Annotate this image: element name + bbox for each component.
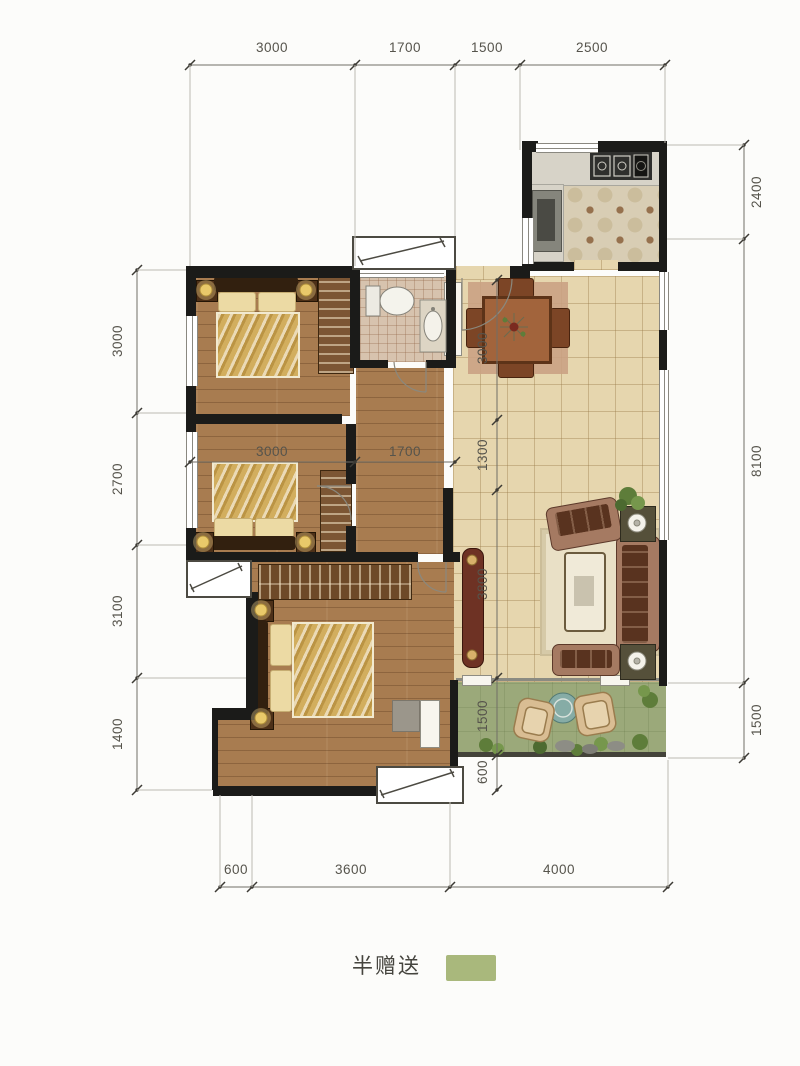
dim-label: 1400 xyxy=(110,704,126,764)
wall-segment xyxy=(659,540,667,686)
bed3-blanket xyxy=(292,622,374,718)
bathroom-floor xyxy=(360,276,446,362)
coffee-table-tray xyxy=(574,576,594,606)
wall-segment xyxy=(598,141,667,152)
bay-window-marker-top xyxy=(352,236,456,270)
bedroom1-wardrobe xyxy=(318,274,354,374)
wall-segment xyxy=(659,330,667,372)
coffee-table xyxy=(564,552,606,632)
dim-label: 1500 xyxy=(749,690,765,750)
wall-segment xyxy=(450,680,458,766)
bed2-headboard xyxy=(210,536,296,550)
bay-window-marker-left xyxy=(186,560,252,598)
dim-label: 2400 xyxy=(749,162,765,222)
sofa-bench xyxy=(552,644,620,676)
bed1-headboard xyxy=(214,276,298,292)
bedroom3-dresser xyxy=(420,700,440,748)
dim-label: 4000 xyxy=(529,862,589,878)
dim-label: 1700 xyxy=(375,40,435,56)
wall-segment xyxy=(446,266,456,368)
bed3-pillow xyxy=(270,670,292,712)
bedroom3-mat xyxy=(392,700,420,732)
dim-label: 8100 xyxy=(749,431,765,491)
sofa-long-cushions xyxy=(622,545,648,643)
dining-table xyxy=(482,296,552,364)
dim-label: 2500 xyxy=(562,40,622,56)
living-window xyxy=(659,370,669,540)
bedroom3-floor-ext xyxy=(213,716,253,790)
bed2-pillow xyxy=(214,518,253,538)
bench-cushions xyxy=(560,650,612,668)
dining-window xyxy=(659,272,669,330)
bedroom1-window xyxy=(186,316,198,386)
wall-segment xyxy=(360,360,388,368)
wall-segment xyxy=(443,488,453,562)
legend-swatch xyxy=(446,955,496,981)
wall-segment xyxy=(212,708,258,720)
nightstand xyxy=(194,532,214,554)
loveseat-cushions xyxy=(555,504,612,537)
balcony-planter-left xyxy=(462,675,492,686)
wall-segment xyxy=(186,386,196,432)
bed1-pillow xyxy=(258,292,296,312)
floor-plan-sheet: 3000 1700 1500 2500 3000 2700 3100 1400 … xyxy=(0,0,800,1066)
wall-segment xyxy=(186,266,196,316)
cooktop xyxy=(590,152,652,180)
wall-segment xyxy=(522,152,532,218)
wall-segment xyxy=(186,266,356,278)
side-table-top xyxy=(620,506,656,542)
hallway-floor xyxy=(356,368,444,554)
wall-segment xyxy=(246,592,258,718)
dim-label: 1500 xyxy=(475,686,491,746)
bay-cutout xyxy=(196,594,246,710)
kitchen-sink-unit xyxy=(532,190,562,252)
kitchen-window xyxy=(536,143,598,153)
dim-label: 3100 xyxy=(110,581,126,641)
dim-label: 3000 xyxy=(110,311,126,371)
nightstand xyxy=(296,532,316,554)
wall-segment xyxy=(618,262,667,271)
wall-segment xyxy=(346,424,356,484)
wall-segment xyxy=(446,552,460,562)
dim-label: 3000 xyxy=(475,318,491,378)
dim-label: 1700 xyxy=(375,444,435,460)
dim-label: 600 xyxy=(206,862,266,878)
sofa-long xyxy=(616,536,660,652)
dim-label: 1300 xyxy=(475,425,491,485)
wall-segment xyxy=(212,720,218,790)
bed3-pillow xyxy=(270,624,292,666)
dining-chair-right xyxy=(550,308,570,348)
dim-label: 3000 xyxy=(242,40,302,56)
bay-window-marker-bottom xyxy=(376,766,464,804)
dim-label: 2700 xyxy=(110,449,126,509)
dim-label: 600 xyxy=(475,742,491,802)
dim-label: 3000 xyxy=(242,444,302,460)
wall-segment xyxy=(196,414,342,424)
kitchen-door-floor xyxy=(574,260,618,270)
legend-label: 半赠送 xyxy=(352,950,421,980)
nightstand xyxy=(296,280,318,302)
wall-segment xyxy=(426,360,456,368)
bed2-blanket xyxy=(212,462,298,522)
wall-segment xyxy=(510,266,530,278)
sink-basin xyxy=(537,199,555,241)
bedroom2-window xyxy=(186,432,198,528)
wall-segment xyxy=(350,266,360,368)
wall-segment xyxy=(213,786,379,796)
dim-label: 1500 xyxy=(457,40,517,56)
bed1-blanket xyxy=(216,312,300,378)
dim-label: 3600 xyxy=(321,862,381,878)
dim-label: 3800 xyxy=(475,554,491,614)
dining-chair-top xyxy=(498,278,534,298)
kitchen-side-window xyxy=(522,218,534,264)
bedroom3-wardrobe xyxy=(258,564,412,600)
bed1-pillow xyxy=(218,292,256,312)
bed2-pillow xyxy=(255,518,294,538)
wall-segment xyxy=(659,141,667,274)
side-table-bottom xyxy=(620,644,656,680)
